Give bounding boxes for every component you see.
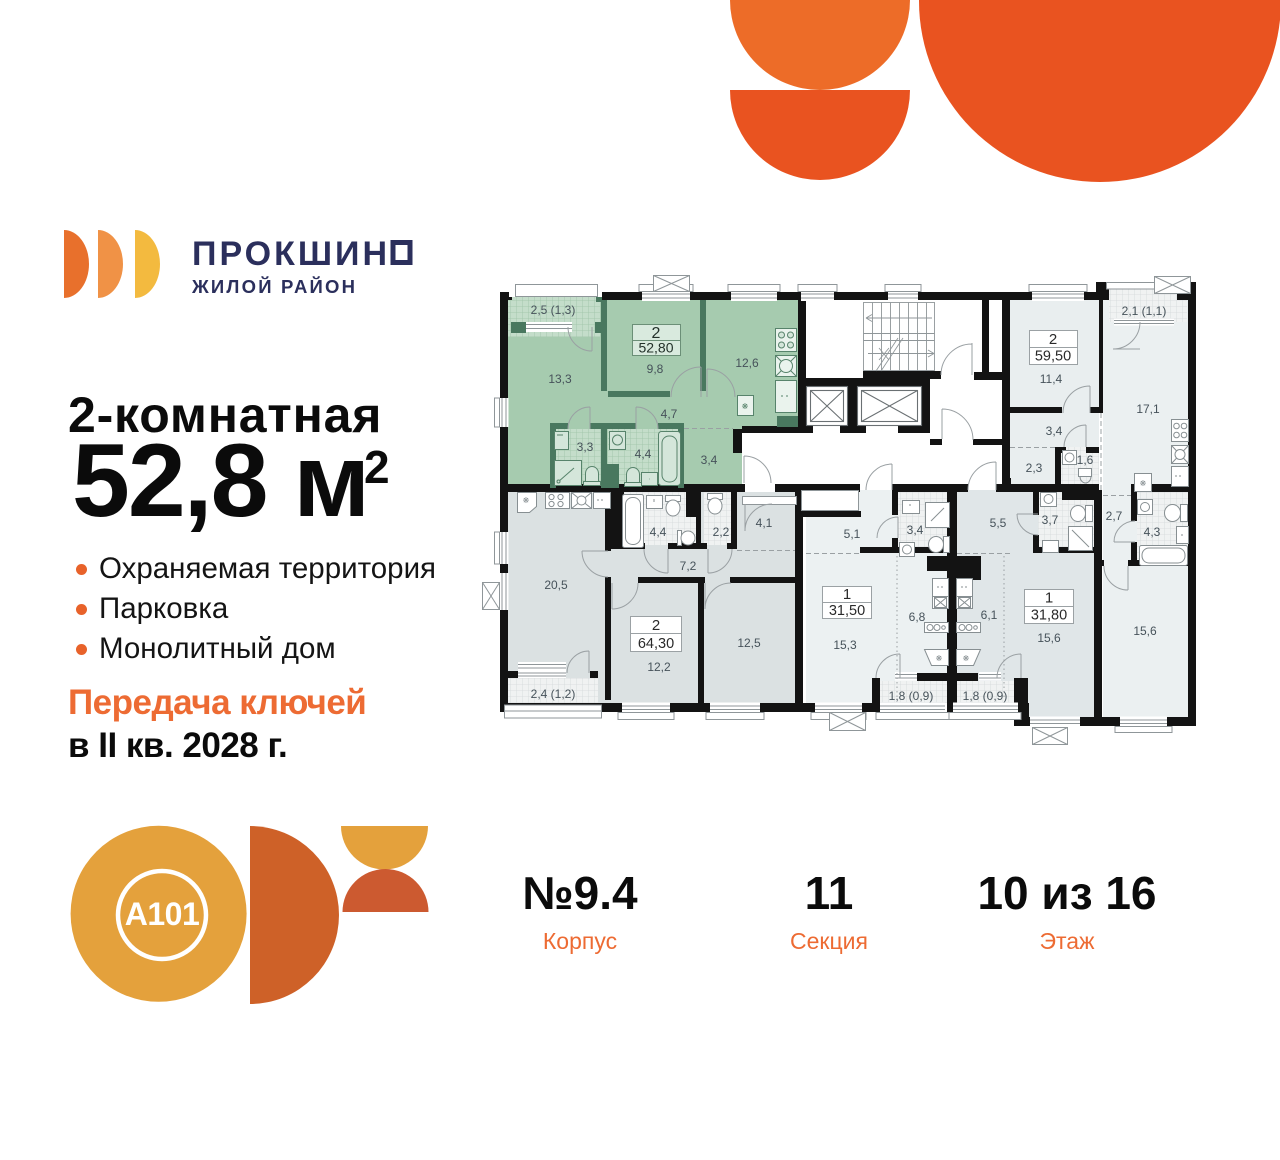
svg-text:52,80: 52,80 [638,340,673,356]
svg-text:2,7: 2,7 [1106,509,1123,523]
svg-text:3,4: 3,4 [907,523,924,537]
svg-text:4,4: 4,4 [635,447,652,461]
svg-text:4,4: 4,4 [650,525,667,539]
svg-text:❋: ❋ [963,654,970,663]
svg-text:6,1: 6,1 [981,608,998,622]
svg-text:7,2: 7,2 [680,559,697,573]
svg-text:2,3: 2,3 [1026,461,1043,475]
svg-text:2: 2 [652,617,660,634]
svg-text:13,3: 13,3 [548,372,572,386]
svg-text:2,5 (1,3): 2,5 (1,3) [531,303,576,317]
svg-text:1: 1 [1045,590,1053,607]
svg-text:1: 1 [843,586,851,603]
svg-text:5,5: 5,5 [990,516,1007,530]
svg-text:15,6: 15,6 [1133,624,1157,638]
svg-text:1,8 (0,9): 1,8 (0,9) [963,689,1008,703]
svg-text:20,5: 20,5 [544,578,568,592]
svg-text:5,1: 5,1 [844,527,861,541]
svg-text:3,4: 3,4 [1046,424,1063,438]
svg-text:2: 2 [1049,331,1057,348]
svg-text:2,1 (1,1): 2,1 (1,1) [1122,304,1167,318]
svg-text:1,8 (0,9): 1,8 (0,9) [889,689,934,703]
svg-text:❋: ❋ [523,496,530,505]
svg-text:2,2: 2,2 [713,525,730,539]
svg-text:3,3: 3,3 [577,440,594,454]
svg-text:31,80: 31,80 [1031,608,1067,624]
svg-text:11,4: 11,4 [1040,372,1063,386]
svg-text:12,5: 12,5 [737,636,761,650]
svg-text:1,6: 1,6 [1077,453,1094,467]
svg-text:❋: ❋ [1140,479,1147,488]
svg-text:15,3: 15,3 [833,638,857,652]
svg-text:17,1: 17,1 [1136,402,1160,416]
svg-text:15,6: 15,6 [1037,631,1061,645]
svg-text:❋: ❋ [742,402,749,411]
svg-text:9,8: 9,8 [647,362,664,376]
svg-text:4,7: 4,7 [661,407,678,421]
svg-text:4,3: 4,3 [1144,525,1161,539]
svg-text:31,50: 31,50 [829,603,865,619]
svg-text:❋: ❋ [936,654,943,663]
svg-text:12,2: 12,2 [647,660,671,674]
svg-text:2,4 (1,2): 2,4 (1,2) [531,687,576,701]
svg-text:59,50: 59,50 [1035,349,1071,365]
svg-text:4,1: 4,1 [756,516,773,530]
svg-text:6,8: 6,8 [909,610,926,624]
svg-text:3,7: 3,7 [1042,513,1059,527]
svg-text:3,4: 3,4 [701,453,718,467]
svg-text:12,6: 12,6 [735,356,759,370]
svg-text:64,30: 64,30 [638,636,674,652]
